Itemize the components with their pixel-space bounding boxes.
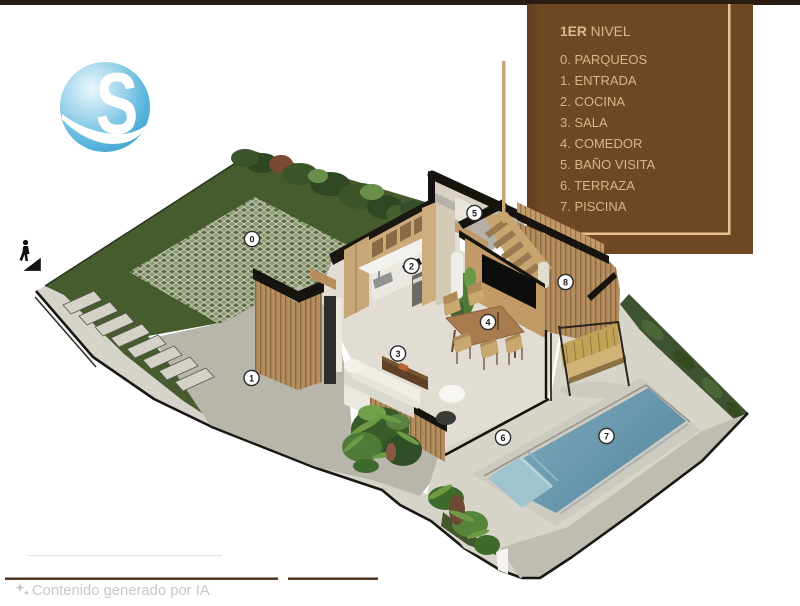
svg-text:1ER NIVEL: 1ER NIVEL <box>560 24 631 39</box>
svg-text:1. ENTRADA: 1. ENTRADA <box>560 73 637 88</box>
svg-text:7. PISCINA: 7. PISCINA <box>560 199 627 214</box>
svg-text:0: 0 <box>249 235 254 245</box>
svg-text:6. TERRAZA: 6. TERRAZA <box>560 178 635 193</box>
svg-text:3. SALA: 3. SALA <box>560 115 608 130</box>
svg-text:4. COMEDOR: 4. COMEDOR <box>560 136 642 151</box>
svg-text:2: 2 <box>409 262 414 272</box>
svg-text:5. BAÑO VISITA: 5. BAÑO VISITA <box>560 157 655 172</box>
svg-text:5: 5 <box>472 209 477 219</box>
svg-text:6: 6 <box>500 433 505 443</box>
svg-text:2. COCINA: 2. COCINA <box>560 94 625 109</box>
svg-text:1: 1 <box>249 374 254 384</box>
svg-text:4: 4 <box>485 318 490 328</box>
svg-text:8: 8 <box>563 278 568 288</box>
svg-text:7: 7 <box>604 432 609 442</box>
svg-text:3: 3 <box>395 349 400 359</box>
svg-text:0. PARQUEOS: 0. PARQUEOS <box>560 52 648 67</box>
svg-text:Contenido generado por IA: Contenido generado por IA <box>32 583 210 599</box>
